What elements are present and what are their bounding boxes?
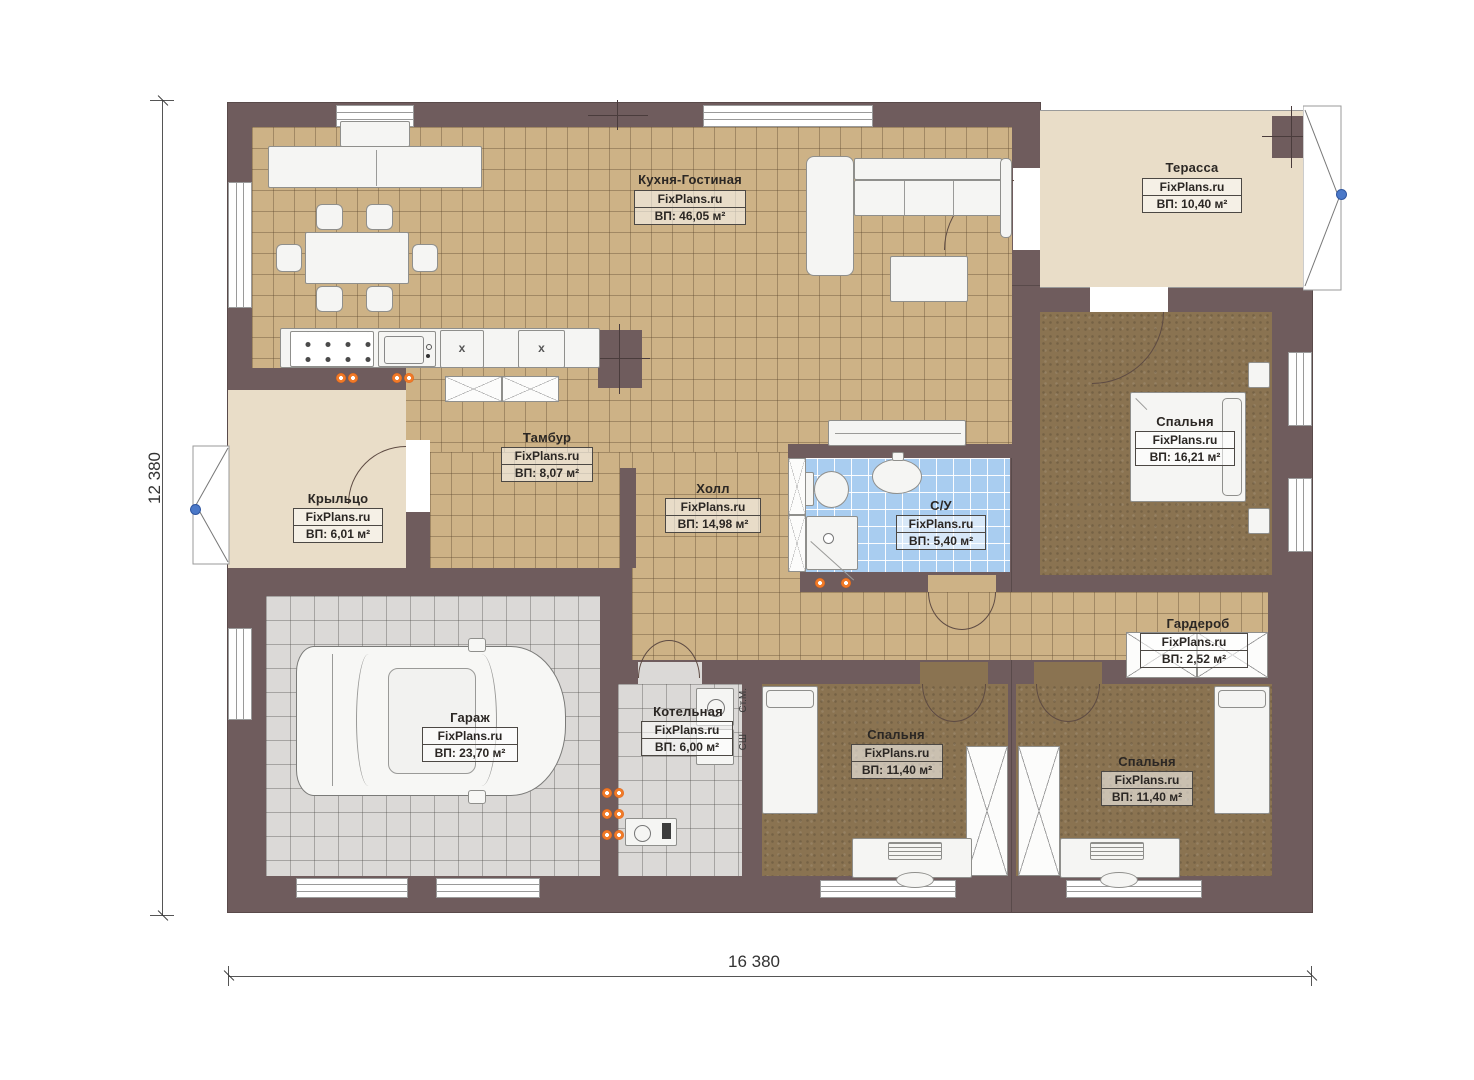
nightstand <box>1248 362 1270 388</box>
room-label-kitchen-living: FixPlans.ru ВП: 46,05 м² <box>634 190 746 225</box>
desk-chair <box>896 872 934 888</box>
room-title-wardrobe: Гардероб <box>1166 616 1229 631</box>
room-title-porch: Крыльцо <box>308 491 369 506</box>
shower-tray <box>806 516 858 570</box>
room-title-tambour: Тамбур <box>523 430 571 445</box>
sofa-chaise <box>806 156 854 276</box>
closet-bedroom-mid <box>966 746 1008 876</box>
coffee-table <box>890 256 968 302</box>
bed-pillow <box>766 690 814 708</box>
dimension-vertical-label: 12 380 <box>145 438 165 518</box>
outlet-dot <box>815 578 825 588</box>
window-bedroom-mid <box>820 880 956 898</box>
washer-label: Ст.М. <box>738 688 749 713</box>
room-area: ВП: 5,40 м² <box>897 532 985 549</box>
brand-link: FixPlans.ru <box>502 448 592 464</box>
room-area: ВП: 23,70 м² <box>423 744 517 761</box>
appliance-mark-1: x <box>440 341 484 355</box>
outlet-dot <box>602 830 612 840</box>
floor-plan-canvas: 12 380 16 380 <box>0 0 1474 1080</box>
dimension-horizontal-label: 16 380 <box>728 952 780 972</box>
outlet-dot <box>404 373 414 383</box>
window-top-center <box>703 105 873 127</box>
brand-link: FixPlans.ru <box>635 191 745 207</box>
dining-chair <box>366 204 393 230</box>
dining-chair <box>276 244 302 272</box>
room-title-bedroom-mid: Спальня <box>867 727 925 742</box>
doorway-terrace-bedroom <box>1090 287 1168 312</box>
brand-link: FixPlans.ru <box>897 516 985 532</box>
desk-chair <box>1100 872 1138 888</box>
outlet-dot <box>602 809 612 819</box>
anchor-dot-right <box>1336 189 1347 200</box>
room-area: ВП: 16,21 м² <box>1136 448 1234 465</box>
car-top-view <box>296 638 568 802</box>
room-title-terrace: Терасса <box>1166 160 1219 175</box>
monitor <box>1090 842 1144 860</box>
room-area: ВП: 14,98 м² <box>666 515 760 532</box>
room-title-garage: Гараж <box>450 710 490 725</box>
window-right-bedroom-2 <box>1288 478 1312 552</box>
dining-chair <box>316 204 343 230</box>
room-label-garage: FixPlans.ru ВП: 23,70 м² <box>422 727 518 762</box>
room-label-bathroom: FixPlans.ru ВП: 5,40 м² <box>896 515 986 550</box>
room-area: ВП: 10,40 м² <box>1143 195 1241 212</box>
bathroom-sliding-door <box>788 458 806 515</box>
wall-chimney-block <box>598 330 642 388</box>
outlet-dot <box>614 809 624 819</box>
window-right-bedroom-1 <box>1288 352 1312 426</box>
doorway-entrance <box>406 440 430 512</box>
room-label-wardrobe: FixPlans.ru ВП: 2,52 м² <box>1140 633 1248 668</box>
monitor <box>888 842 942 860</box>
room-label-boiler: FixPlans.ru ВП: 6,00 м² <box>641 721 733 756</box>
room-area: ВП: 2,52 м² <box>1141 650 1247 667</box>
nightstand <box>1248 508 1270 534</box>
sofa-back <box>854 158 1002 180</box>
outlet-dot <box>841 578 851 588</box>
closet-bedroom-br <box>1018 746 1060 876</box>
room-label-porch: FixPlans.ru ВП: 6,01 м² <box>293 508 383 543</box>
outlet-dot <box>392 373 402 383</box>
room-area: ВП: 11,40 м² <box>852 761 942 778</box>
brand-link: FixPlans.ru <box>294 509 382 525</box>
wall-tambour-hall <box>620 468 636 568</box>
brand-link: FixPlans.ru <box>1143 179 1241 195</box>
room-title-hall: Холл <box>696 481 729 496</box>
sofa-armrest <box>1000 158 1012 238</box>
room-area: ВП: 46,05 м² <box>635 207 745 224</box>
room-area: ВП: 6,01 м² <box>294 525 382 542</box>
room-label-terrace: FixPlans.ru ВП: 10,40 м² <box>1142 178 1242 213</box>
tv-stand <box>828 420 966 446</box>
room-label-hall: FixPlans.ru ВП: 14,98 м² <box>665 498 761 533</box>
boiler-unit <box>625 818 677 846</box>
tambour-closet <box>502 376 559 402</box>
doorway-bedroom-right <box>928 575 996 592</box>
sink-tap <box>892 452 904 461</box>
window-left-garage <box>228 628 252 720</box>
doorway-terrace <box>1013 168 1040 250</box>
outlet-dot <box>336 373 346 383</box>
outlet-dot <box>602 788 612 798</box>
window-left-kitchen <box>228 182 252 308</box>
room-label-bedroom-mid: FixPlans.ru ВП: 11,40 м² <box>851 744 943 779</box>
brand-link: FixPlans.ru <box>642 722 732 738</box>
dining-table <box>305 232 409 284</box>
kitchen-sink <box>378 331 436 367</box>
bathroom-sink <box>872 459 922 494</box>
brand-link: FixPlans.ru <box>423 728 517 744</box>
wall-above-porch <box>228 368 406 390</box>
kitchen-upper-counter <box>268 146 482 188</box>
garage-door-1 <box>296 878 408 898</box>
dining-chair <box>366 286 393 312</box>
brand-link: FixPlans.ru <box>1141 634 1247 650</box>
room-title-bedroom-br: Спальня <box>1118 754 1176 769</box>
bed-pillow <box>1218 690 1266 708</box>
outlet-dot <box>348 373 358 383</box>
appliance-mark-2: x <box>518 341 565 355</box>
room-area: ВП: 6,00 м² <box>642 738 732 755</box>
room-title-bathroom: С/У <box>930 498 952 513</box>
stove <box>290 331 374 367</box>
doorway-bedroom-mid <box>920 662 988 684</box>
outlet-dot <box>614 788 624 798</box>
room-label-bedroom-br: FixPlans.ru ВП: 11,40 м² <box>1101 771 1193 806</box>
doorway-bedroom-br <box>1034 662 1102 684</box>
garage-door-2 <box>436 878 540 898</box>
brand-link: FixPlans.ru <box>1102 772 1192 788</box>
brand-link: FixPlans.ru <box>1136 432 1234 448</box>
room-area: ВП: 11,40 м² <box>1102 788 1192 805</box>
bathroom-sliding-door <box>788 515 806 572</box>
dining-chair <box>316 286 343 312</box>
brand-link: FixPlans.ru <box>666 499 760 515</box>
toilet-bowl <box>814 471 849 508</box>
tambour-closet <box>445 376 502 402</box>
room-label-bedroom-right: FixPlans.ru ВП: 16,21 м² <box>1135 431 1235 466</box>
outlet-dot <box>614 830 624 840</box>
room-title-bedroom-right: Спальня <box>1156 414 1214 429</box>
room-label-tambour: FixPlans.ru ВП: 8,07 м² <box>501 447 593 482</box>
dryer-label: СШ <box>738 734 749 750</box>
sofa-seat <box>854 180 1002 216</box>
dining-chair <box>412 244 438 272</box>
brand-link: FixPlans.ru <box>852 745 942 761</box>
anchor-dot-left <box>190 504 201 515</box>
room-area: ВП: 8,07 м² <box>502 464 592 481</box>
room-title-kitchen-living: Кухня-Гостиная <box>638 172 742 187</box>
room-title-boiler: Котельная <box>653 704 723 719</box>
range-hood <box>340 121 410 147</box>
